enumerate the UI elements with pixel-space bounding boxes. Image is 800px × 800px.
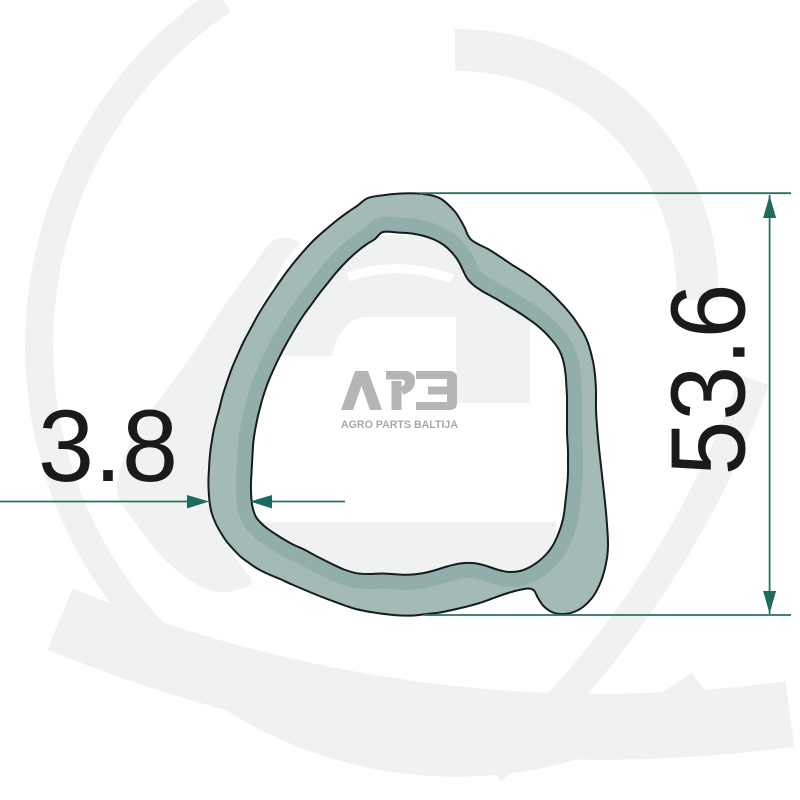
svg-text:53.6: 53.6 bbox=[650, 284, 768, 476]
svg-text:3.8: 3.8 bbox=[38, 389, 178, 503]
svg-text:AGRO PARTS BALTIJA: AGRO PARTS BALTIJA bbox=[341, 419, 458, 431]
